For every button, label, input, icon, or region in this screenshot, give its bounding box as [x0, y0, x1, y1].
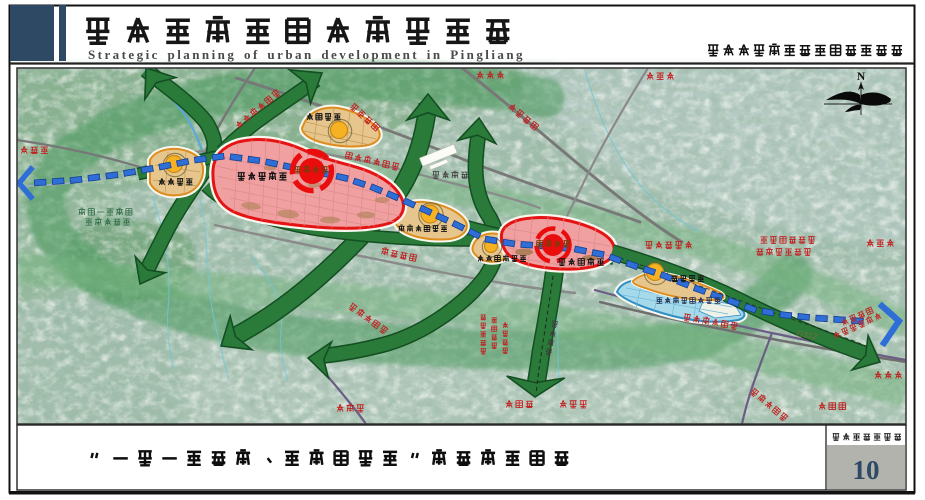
- svg-text:10: 10: [853, 455, 880, 485]
